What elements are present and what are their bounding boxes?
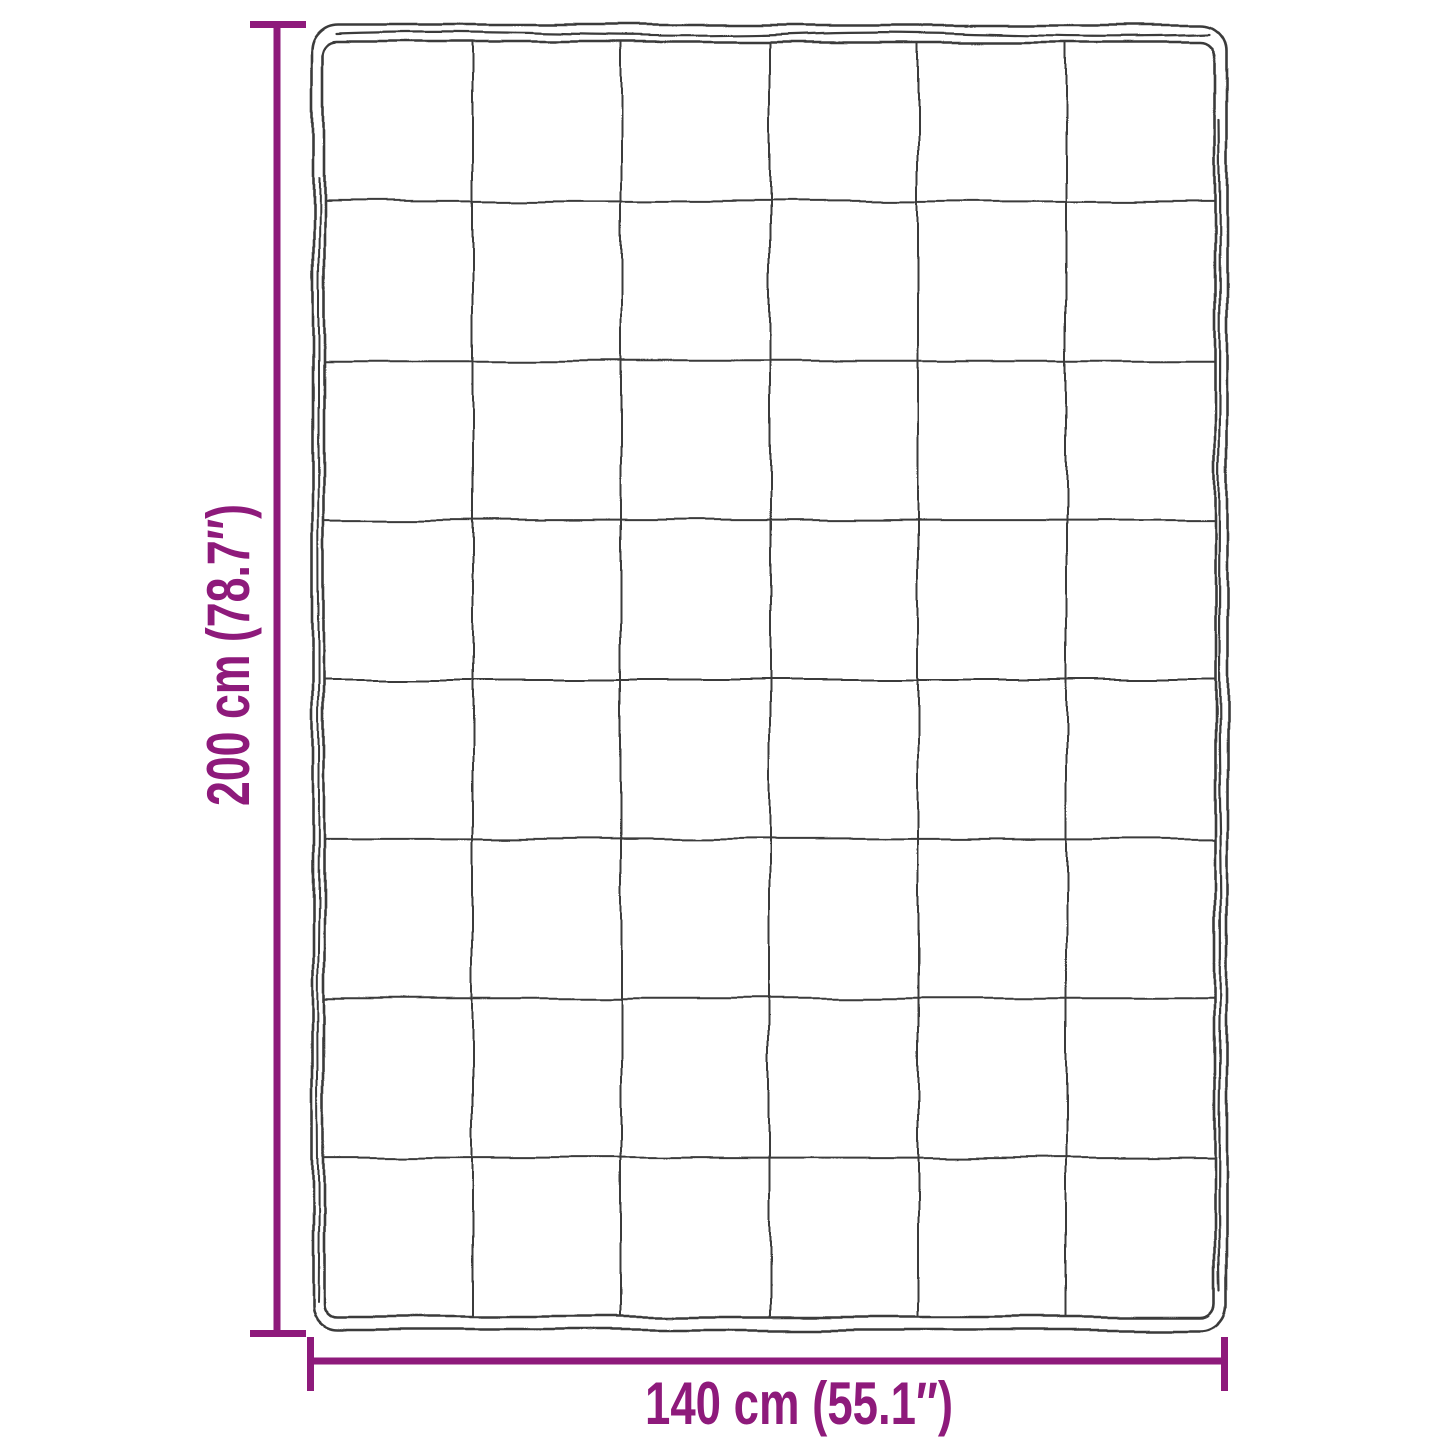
height-dimension: 200 cm (78.7″) [195,21,306,1337]
quilt-grid [324,42,1215,1317]
sketch-overdraw-right [1219,120,1221,1290]
dimension-diagram: 200 cm (78.7″) 140 cm (55.1″) [0,0,1445,1445]
height-dimension-end-cap-top [250,21,306,28]
sketch-overdraw-top [338,32,1210,36]
width-dimension-end-cap-right [1221,1337,1228,1391]
width-dimension-label: 140 cm (55.1″) [645,1370,953,1437]
sketch-overdraw-left [318,180,319,1300]
height-dimension-line [274,24,281,1334]
blanket-illustration: 200 cm (78.7″) 140 cm (55.1″) [0,0,1445,1445]
height-dimension-label: 200 cm (78.7″) [195,504,262,806]
blanket [313,25,1227,1330]
width-dimension: 140 cm (55.1″) [307,1337,1228,1437]
height-dimension-end-cap-bottom [250,1330,306,1337]
width-dimension-line [311,1358,1224,1365]
width-dimension-end-cap-left [307,1337,314,1391]
